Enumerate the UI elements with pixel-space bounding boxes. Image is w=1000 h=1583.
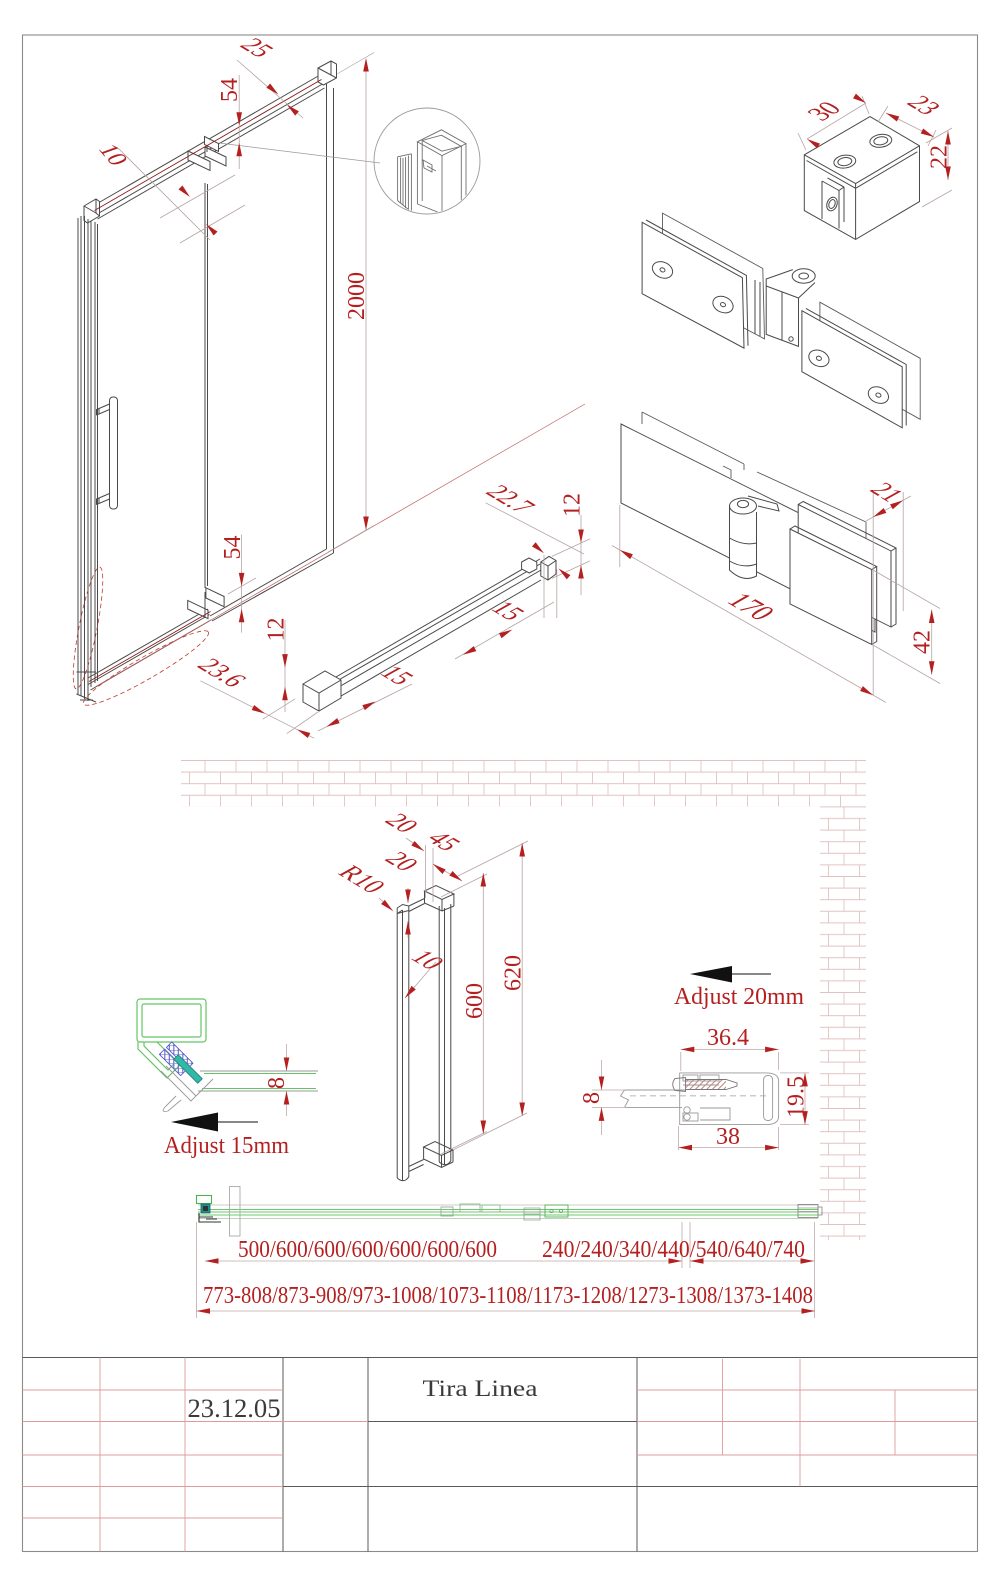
svg-text:600: 600 <box>462 983 488 1019</box>
svg-text:Adjust 20mm: Adjust 20mm <box>674 984 804 1010</box>
svg-text:170: 170 <box>719 589 781 625</box>
svg-text:54: 54 <box>220 536 246 560</box>
svg-text:19.5: 19.5 <box>784 1076 810 1118</box>
svg-text:240/240/340/440/540/640/740: 240/240/340/440/540/640/740 <box>542 1237 805 1263</box>
svg-text:21: 21 <box>863 478 911 505</box>
svg-text:8: 8 <box>579 1092 605 1104</box>
svg-text:30: 30 <box>800 97 848 124</box>
svg-text:2000: 2000 <box>344 272 370 320</box>
svg-text:23: 23 <box>900 91 948 118</box>
svg-text:25: 25 <box>233 34 281 61</box>
svg-text:8: 8 <box>264 1077 290 1089</box>
svg-text:22: 22 <box>927 145 953 169</box>
svg-text:Adjust 15mm: Adjust 15mm <box>164 1133 289 1159</box>
svg-text:12: 12 <box>264 618 290 642</box>
svg-text:42: 42 <box>910 630 936 654</box>
svg-text:R10: R10 <box>331 861 392 897</box>
svg-text:22.7: 22.7 <box>479 481 542 518</box>
svg-text:Tira Linea: Tira Linea <box>423 1376 538 1401</box>
svg-text:38: 38 <box>716 1124 740 1150</box>
svg-text:23.12.05: 23.12.05 <box>188 1394 281 1423</box>
svg-text:10: 10 <box>92 141 134 169</box>
svg-text:15: 15 <box>484 597 532 624</box>
svg-text:620: 620 <box>501 955 527 991</box>
svg-text:23.6: 23.6 <box>190 654 253 691</box>
svg-text:54: 54 <box>217 78 243 102</box>
svg-text:500/600/600/600/600/600/600: 500/600/600/600/600/600/600 <box>238 1237 497 1263</box>
svg-text:12: 12 <box>560 493 586 517</box>
svg-text:773-808/873-908/973-1008/1073-: 773-808/873-908/973-1008/1073-1108/1173-… <box>203 1283 813 1309</box>
svg-text:36.4: 36.4 <box>707 1025 749 1051</box>
svg-text:45: 45 <box>420 827 468 854</box>
svg-text:20: 20 <box>378 848 426 875</box>
svg-text:15: 15 <box>373 661 421 688</box>
svg-text:20: 20 <box>378 809 426 836</box>
